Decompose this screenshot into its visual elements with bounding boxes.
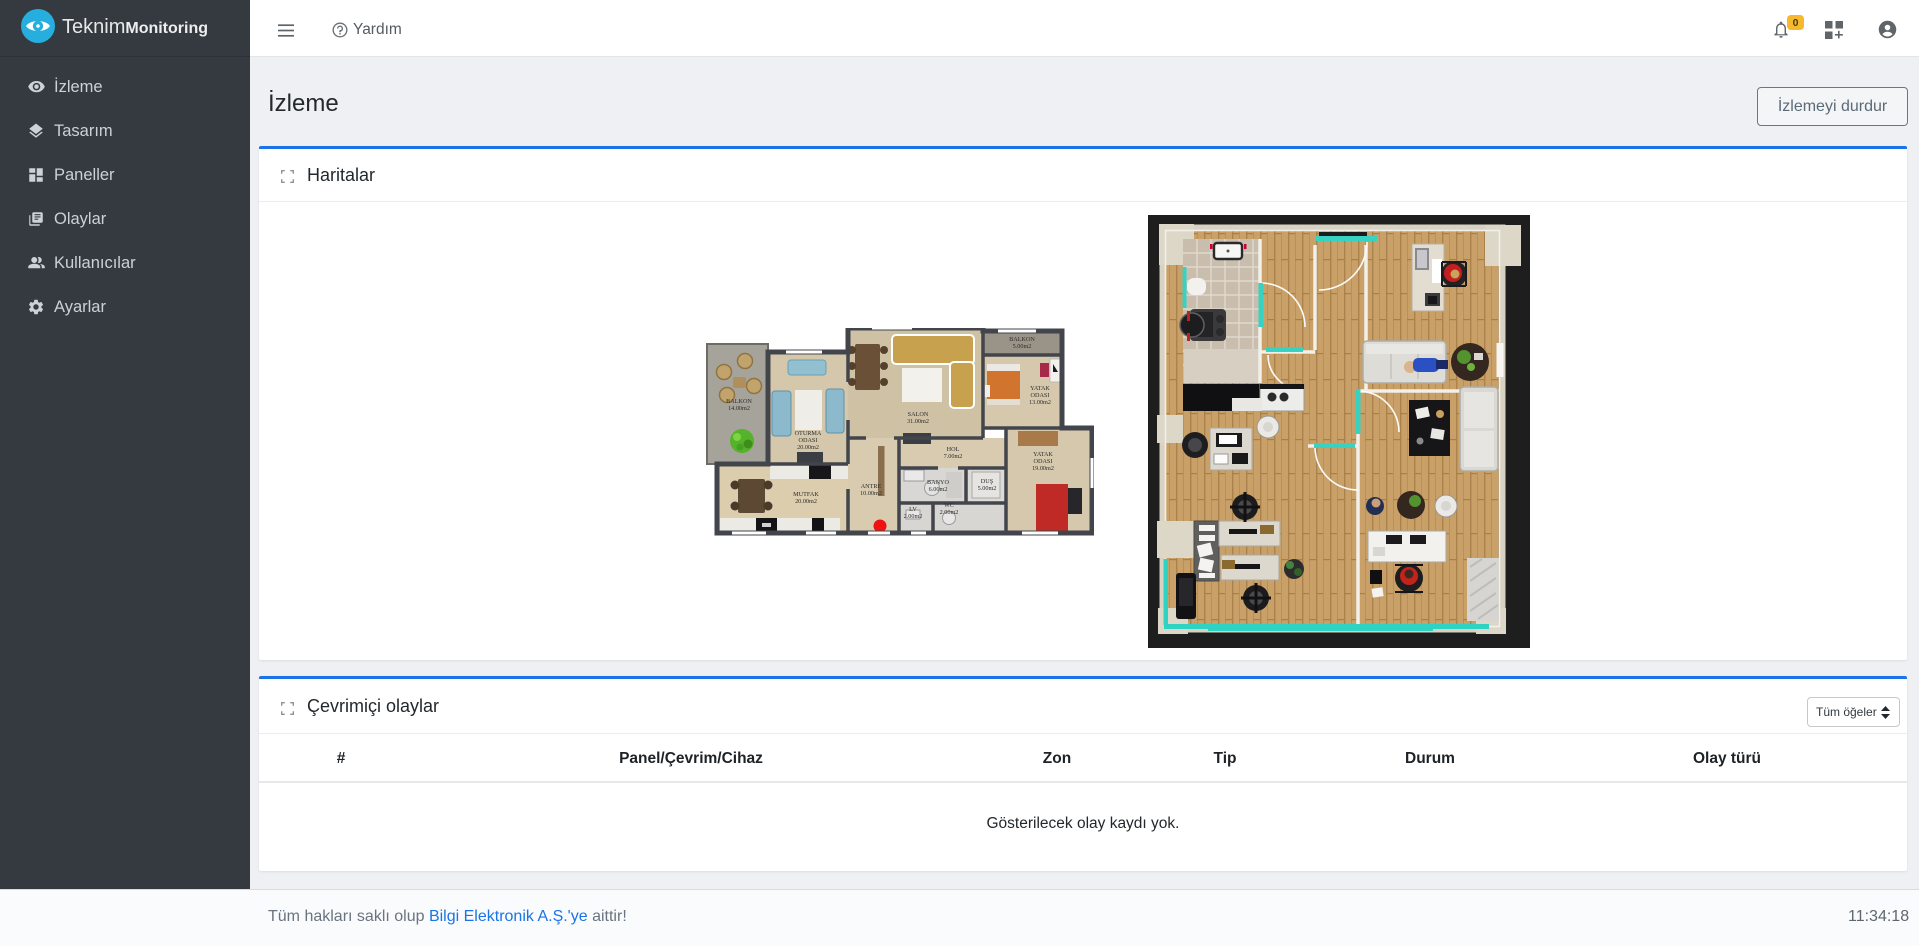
svg-text:10.00m2: 10.00m2: [860, 490, 882, 497]
svg-text:5.00m2: 5.00m2: [978, 485, 997, 492]
svg-text:BALKON: BALKON: [726, 398, 752, 405]
svg-text:BALKON: BALKON: [1009, 336, 1035, 343]
svg-text:19.00m2: 19.00m2: [1032, 465, 1054, 472]
svg-text:2.00m2: 2.00m2: [940, 509, 959, 516]
svg-text:LV: LV: [909, 506, 917, 513]
svg-text:YATAK: YATAK: [1030, 385, 1050, 392]
svg-text:2.00m2: 2.00m2: [904, 513, 923, 520]
svg-text:20.00m2: 20.00m2: [795, 498, 817, 505]
svg-text:ODASI: ODASI: [1034, 458, 1053, 465]
svg-text:DUŞ: DUŞ: [981, 478, 994, 485]
svg-text:13.00m2: 13.00m2: [1029, 399, 1051, 406]
svg-text:YATAK: YATAK: [1033, 451, 1053, 458]
svg-text:31.00m2: 31.00m2: [907, 418, 929, 425]
svg-text:SALON: SALON: [908, 411, 929, 418]
svg-text:ODASI: ODASI: [799, 437, 818, 444]
svg-text:MUTFAK: MUTFAK: [793, 491, 819, 498]
svg-text:OTURMA: OTURMA: [795, 430, 822, 437]
svg-text:BANYO: BANYO: [927, 479, 950, 486]
svg-text:HOL: HOL: [947, 446, 960, 453]
svg-text:ANTRE: ANTRE: [861, 483, 882, 490]
svg-text:7.00m2: 7.00m2: [944, 453, 963, 460]
svg-text:20.00m2: 20.00m2: [797, 444, 819, 451]
svg-text:ODASI: ODASI: [1031, 392, 1050, 399]
svg-text:6.00m2: 6.00m2: [929, 486, 948, 493]
svg-text:5.00m2: 5.00m2: [1013, 343, 1032, 350]
svg-text:14.00m2: 14.00m2: [728, 405, 750, 412]
svg-text:WC: WC: [944, 502, 954, 509]
